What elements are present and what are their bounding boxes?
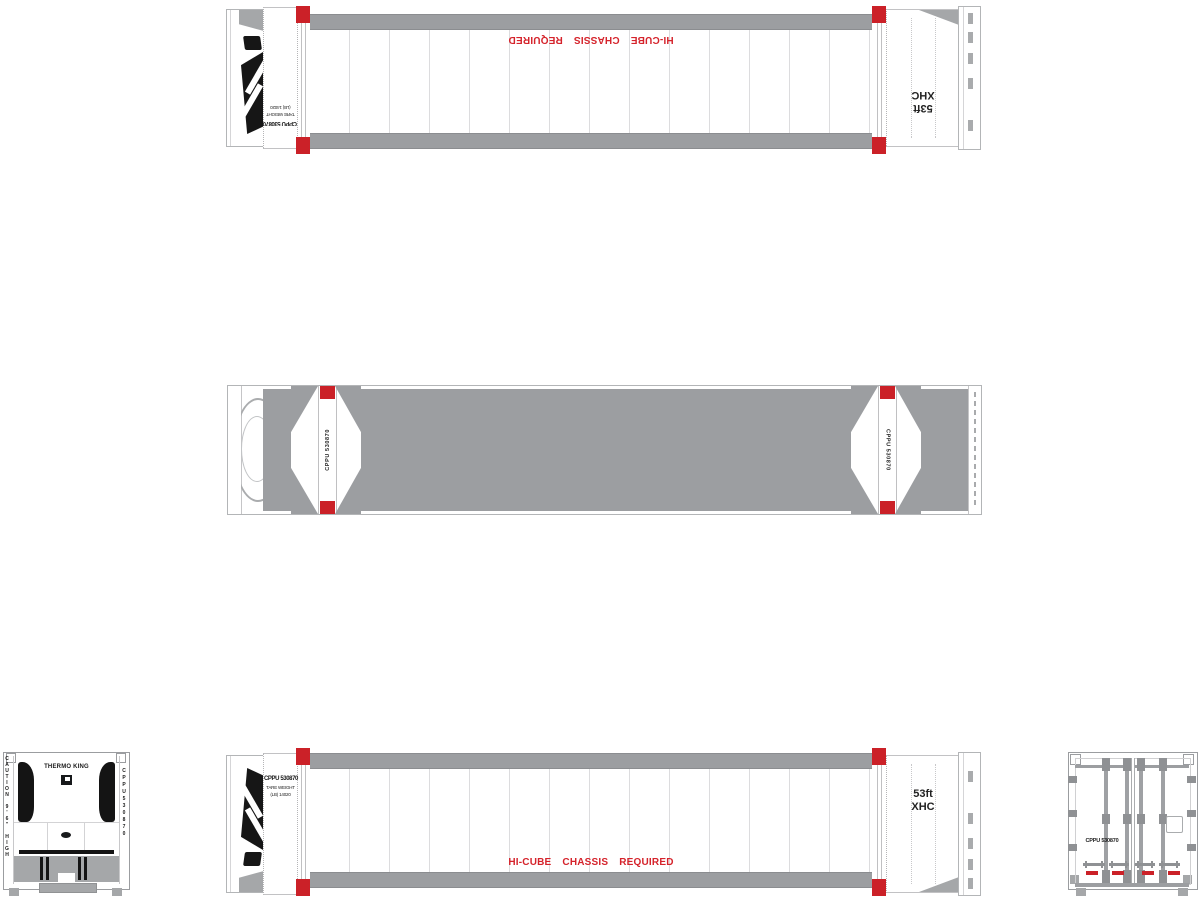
door-end-panel: 53ft XHC [886,9,960,147]
unit-marking-block: CPPU 530870 TARE WEIGHT (LB) 14020 [264,776,297,797]
corner-casting-red [296,6,310,23]
roof-marker-red [320,386,335,399]
handle-tick [1085,861,1087,868]
post-bar [877,764,882,882]
handle-seal-red [1112,871,1124,875]
brace-half [895,386,921,514]
corner-post [872,4,886,154]
corner-casting-red [872,879,886,896]
handle-tick [1137,861,1139,868]
bottom-rail [310,14,872,30]
brace-half [291,386,318,514]
panel-seam [47,822,48,852]
door-hinge [968,53,973,64]
rod-bracket [1137,814,1145,824]
rod-bracket [1137,758,1145,771]
panel-seam [935,764,937,884]
chassis-note: HI-CUBE CHASSIS REQUIRED [310,857,872,868]
corner-casting-red [296,748,310,765]
handle-seal-red [1168,871,1180,875]
side-view-flipped: CPPU 530870 TARE WEIGHT (LB) 14020 HI-CU… [225,4,980,154]
corner-foot [112,888,122,896]
door-hinge [968,78,973,89]
reefer-skirt-wedge [239,10,263,36]
handle-seal-red [1142,871,1154,875]
tare-label: TARE WEIGHT [264,112,297,117]
lock-handle [1159,863,1180,866]
panel-seam [84,822,85,852]
lower-skirt [14,856,119,882]
corner-casting-red [296,137,310,154]
lock-handle [1109,863,1129,866]
corner-casting-red [872,137,886,154]
reefer-fan-housing [241,386,263,514]
rod-bracket [1102,870,1110,883]
size-code-line2: XHC [887,801,959,814]
condenser-grille-right [99,762,115,822]
door-hinge [968,13,973,24]
front-end-frame [226,755,240,893]
corner-foot [1076,888,1086,896]
condenser-grille-left [18,762,34,822]
bumper-bar [19,850,114,854]
container-artwork-sheet: CPPU 530870 TARE WEIGHT (LB) 14020 HI-CU… [0,0,1200,899]
unit-number: CPPU 530870 [264,776,297,782]
skirt-stripe [78,857,81,880]
roof-front-cap [228,386,242,514]
panel-seam [911,764,913,884]
roof-marker-red [880,386,895,399]
roof-door-cap [968,386,982,514]
rod-bracket [1102,758,1110,771]
size-code-block: 53ft XHC [887,788,959,813]
size-code-block: 53ft XHC [887,89,959,114]
door-hinge [968,120,973,131]
thermo-king-logo [61,775,72,785]
frame-line [963,753,964,895]
door-hinge [968,838,973,849]
lock-handle [1135,863,1155,866]
post-bar [301,20,306,138]
corner-casting-red [872,748,886,765]
door-hinge [1068,844,1077,851]
unit-number: CPPU 530870 [1076,838,1128,844]
container-body: HI-CUBE CHASSIS REQUIRED [310,4,872,154]
panel-seam [14,822,119,823]
bottom-step [39,883,97,893]
rod-bracket [1159,870,1167,883]
corrugated-panel [310,30,872,133]
handle-tick [1151,861,1153,868]
bottom-rail [310,872,872,888]
marking-panel: CPPU 530870 TARE WEIGHT (LB) 14020 [263,7,298,149]
top-rail [310,753,872,769]
handle-tick [1161,861,1163,868]
reefer-face: THERMO KING [13,756,120,884]
rod-bracket [1123,870,1131,883]
door-hinge [968,878,973,889]
caution-height-marking: CAUTION 9'6" HIGH [4,756,9,878]
front-end-view: CAUTION 9'6" HIGH CPPU530870 THERMO KING [3,752,130,897]
rod-bracket [1123,814,1131,824]
frame-line [230,756,231,892]
roof-view: CPPU 530870 CPPU 530870 [227,385,982,515]
post-bar [301,764,306,882]
container-body: HI-CUBE CHASSIS REQUIRED [310,748,872,898]
frame-line [963,7,964,149]
roof-brace-zone-front: CPPU 530870 [291,386,361,514]
door-hinge [1187,776,1196,783]
chassis-note: HI-CUBE CHASSIS REQUIRED [310,34,872,45]
handle-seal-red [1086,871,1098,875]
corner-foot [9,888,19,896]
door-hinge-serration [974,392,976,508]
brace-half [335,386,361,514]
panel-seam [911,18,913,138]
roof-brace-zone-rear: CPPU 530870 [851,386,921,514]
reefer-skirt-wedge [239,866,263,892]
door-wedge [919,10,959,25]
reefer-fuel-tank [243,36,262,50]
corner-post [296,4,310,154]
door-hinge [1187,844,1196,851]
tare-label: TARE WEIGHT [264,785,297,790]
unit-number: CPPU 530870 [264,120,297,126]
door-hinge [968,813,973,824]
skirt-stripe [46,857,49,880]
door-hinge [1068,810,1077,817]
corner-post [872,748,886,898]
door-hinge [968,32,973,43]
handle-tick [1111,861,1113,868]
handle-tick [1101,861,1103,868]
reefer-fuel-tank [243,852,262,866]
handle-tick [1125,861,1127,868]
size-code-line1: 53ft [887,101,959,114]
tare-value: (LB) 14020 [264,792,297,797]
handle-tick [1176,861,1178,868]
size-code-line1: 53ft [887,788,959,801]
front-end-frame [226,9,240,147]
drain-oval [61,832,71,838]
panel-seam [935,18,937,138]
skirt-stripe [40,857,43,880]
brace-half [851,386,878,514]
roof-marker-red [880,501,895,514]
unit-marking-block: CPPU 530870 TARE WEIGHT (LB) 14020 [264,105,297,126]
roof-unit-number-front: CPPU 530870 [325,429,331,471]
door-hinge [968,771,973,782]
rod-bracket [1102,814,1110,824]
rear-end-view: CPPU 530870 [1068,752,1198,897]
door-end-frame [958,6,981,150]
door-hinge [1187,810,1196,817]
door-end-frame [958,752,981,896]
unit-number-vertical: CPPU530870 [121,768,127,878]
frame-line [230,10,231,146]
door-end-panel: 53ft XHC [886,755,960,893]
roof-marker-red [320,501,335,514]
side-view: CPPU 530870 TARE WEIGHT (LB) 14020 HI-CU… [225,748,980,898]
rod-bracket [1159,758,1167,771]
post-bar [877,20,882,138]
corner-casting-red [296,879,310,896]
skirt-gap [58,873,75,882]
marking-panel: CPPU 530870 TARE WEIGHT (LB) 14020 [263,753,298,895]
corner-foot [1178,888,1188,896]
door-hinge [1068,776,1077,783]
tare-value: (LB) 14020 [264,105,297,110]
reefer-unit-profile [239,9,263,147]
size-code-line2: XHC [887,89,959,102]
placard-frame [1166,816,1183,833]
reefer-unit-profile [239,755,263,893]
corner-post [296,748,310,898]
rod-bracket [1123,758,1131,771]
door-wedge [919,877,959,892]
roof-unit-number-rear: CPPU 530870 [885,429,891,471]
door-hinge [968,859,973,870]
door-sill [1075,883,1189,887]
corner-casting-red [872,6,886,23]
skirt-stripe [84,857,87,880]
logo-glyph [63,777,72,781]
lock-handle [1083,863,1105,866]
top-rail [310,133,872,149]
